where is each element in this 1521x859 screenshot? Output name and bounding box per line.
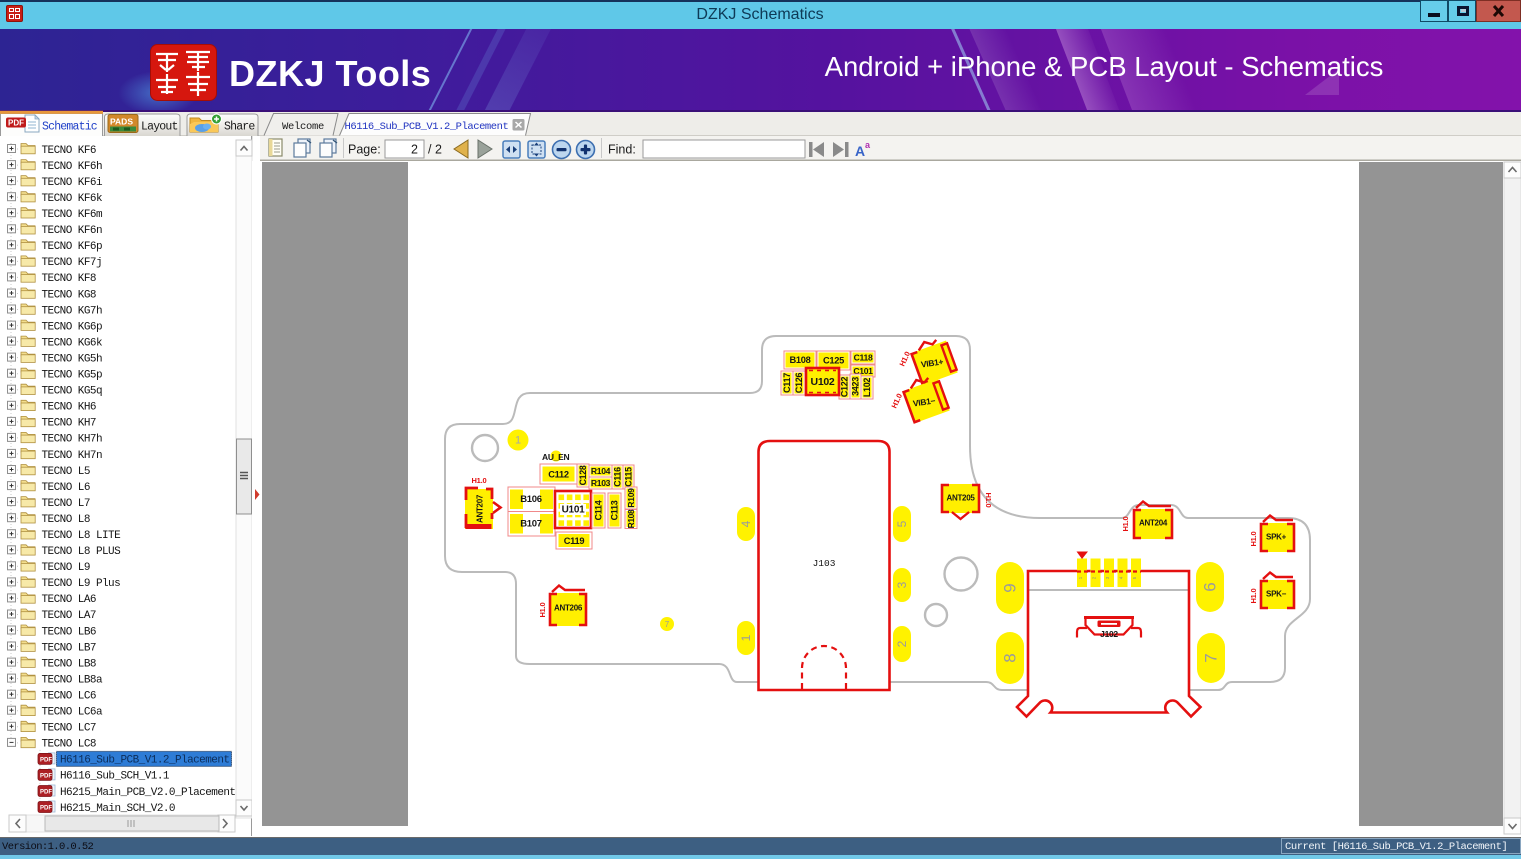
svg-text:H6116_Sub_PCB_V1.2_Placement: H6116_Sub_PCB_V1.2_Placement: [345, 121, 509, 133]
svg-text:H6215_Main_PCB_V2.0_Placement: H6215_Main_PCB_V2.0_Placement: [60, 787, 235, 799]
svg-text:TECNO LC8: TECNO LC8: [42, 739, 96, 751]
svg-text:H1.0: H1.0: [984, 492, 993, 507]
svg-text:2: 2: [411, 143, 418, 157]
svg-text:PADS: PADS: [110, 117, 133, 127]
svg-text:TECNO L5: TECNO L5: [42, 466, 90, 478]
svg-text:B107: B107: [520, 519, 542, 530]
svg-text:TECNO L8: TECNO L8: [42, 514, 90, 526]
svg-text:SPK−: SPK−: [1266, 590, 1287, 599]
svg-text:PDF: PDF: [40, 774, 52, 780]
svg-text:TECNO L9 Plus: TECNO L9 Plus: [42, 578, 121, 590]
svg-text:R108: R108: [626, 509, 636, 528]
svg-text:Schematic: Schematic: [42, 121, 98, 134]
svg-text:C113: C113: [610, 500, 620, 520]
svg-text:ANT205: ANT205: [947, 494, 976, 503]
svg-text:B108: B108: [789, 355, 810, 365]
svg-text:C122: C122: [840, 377, 850, 398]
svg-text:TECNO KF8: TECNO KF8: [42, 273, 96, 285]
svg-text:A: A: [855, 143, 865, 159]
svg-text:7: 7: [665, 620, 670, 629]
svg-text:C125: C125: [823, 356, 844, 366]
svg-text:9: 9: [1001, 583, 1020, 592]
svg-text:C128: C128: [578, 465, 588, 485]
svg-text:TECNO LC6: TECNO LC6: [42, 691, 96, 703]
svg-text:C112: C112: [548, 470, 569, 480]
svg-text:PDF: PDF: [40, 758, 52, 764]
svg-text:R109: R109: [626, 488, 636, 508]
svg-text:3423: 3423: [851, 377, 861, 396]
svg-text:TECNO KG6k: TECNO KG6k: [42, 337, 103, 349]
svg-text:Layout: Layout: [141, 121, 178, 134]
svg-text:2: 2: [895, 640, 909, 647]
svg-text:TECNO LB8: TECNO LB8: [42, 658, 96, 670]
svg-text:H6215_Main_SCH_V2.0: H6215_Main_SCH_V2.0: [60, 803, 175, 815]
svg-text:SPK+: SPK+: [1266, 533, 1287, 542]
svg-text:Welcome: Welcome: [282, 121, 324, 133]
svg-text:5: 5: [895, 520, 909, 527]
svg-text:7: 7: [1202, 653, 1221, 662]
svg-text:Page:: Page:: [348, 143, 381, 157]
svg-text:TECNO KF6m: TECNO KF6m: [42, 209, 103, 221]
svg-text:C114: C114: [594, 500, 604, 520]
svg-text:H1.0: H1.0: [1249, 531, 1258, 546]
svg-text:C115: C115: [624, 467, 634, 487]
svg-text:L102: L102: [862, 378, 872, 398]
svg-text:TECNO KH7n: TECNO KH7n: [42, 450, 103, 462]
svg-text:PDF: PDF: [40, 790, 52, 796]
svg-text:C117: C117: [782, 373, 792, 393]
svg-text:/ 2: / 2: [428, 143, 442, 157]
svg-text:TECNO KG7h: TECNO KG7h: [42, 305, 103, 317]
svg-text:TECNO L8 PLUS: TECNO L8 PLUS: [42, 546, 122, 558]
svg-text:TECNO L8 LITE: TECNO L8 LITE: [42, 530, 122, 542]
svg-text:Find:: Find:: [608, 143, 636, 157]
svg-text:TECNO L7: TECNO L7: [42, 498, 90, 510]
svg-text:TECNO KG5q: TECNO KG5q: [42, 386, 103, 398]
svg-text:Share: Share: [224, 121, 255, 134]
svg-text:TECNO KF6n: TECNO KF6n: [42, 225, 103, 237]
svg-text:C116: C116: [613, 467, 623, 487]
svg-text:TECNO KH7h: TECNO KH7h: [42, 434, 103, 446]
svg-text:TECNO LA7: TECNO LA7: [42, 610, 96, 622]
svg-text:H1.0: H1.0: [1121, 516, 1130, 531]
svg-text:H6116_Sub_SCH_V1.1: H6116_Sub_SCH_V1.1: [60, 771, 170, 783]
svg-text:TECNO KH6: TECNO KH6: [42, 402, 96, 414]
svg-text:TECNO KF6p: TECNO KF6p: [42, 241, 103, 253]
svg-text:TECNO KG6p: TECNO KG6p: [42, 321, 103, 333]
svg-text:U101: U101: [562, 504, 585, 515]
svg-text:4: 4: [739, 520, 753, 527]
svg-text:TECNO KF6h: TECNO KF6h: [42, 161, 103, 173]
svg-text:R103: R103: [591, 478, 611, 488]
svg-text:TECNO L9: TECNO L9: [42, 562, 90, 574]
svg-text:ANT206: ANT206: [554, 604, 583, 613]
svg-text:TECNO LB8a: TECNO LB8a: [42, 674, 103, 686]
svg-text:TECNO KF6i: TECNO KF6i: [42, 177, 103, 189]
svg-text:C126: C126: [794, 373, 804, 394]
svg-text:AU_EN: AU_EN: [542, 452, 569, 462]
svg-text:TECNO LC6a: TECNO LC6a: [42, 707, 103, 719]
svg-text:TECNO LB7: TECNO LB7: [42, 642, 96, 654]
svg-text:6: 6: [1201, 582, 1220, 591]
svg-text:TECNO KG5h: TECNO KG5h: [42, 353, 103, 365]
svg-text:PDF: PDF: [40, 806, 52, 812]
svg-text:J102: J102: [1100, 629, 1118, 639]
svg-text:U102: U102: [811, 376, 835, 388]
svg-text:ANT207: ANT207: [476, 494, 485, 523]
svg-text:TECNO LB6: TECNO LB6: [42, 626, 96, 638]
svg-text:B106: B106: [520, 494, 542, 505]
svg-text:TECNO L6: TECNO L6: [42, 482, 90, 494]
svg-text:TECNO KG8: TECNO KG8: [42, 289, 96, 301]
svg-text:TECNO LA6: TECNO LA6: [42, 594, 96, 606]
svg-text:1: 1: [515, 435, 521, 447]
svg-text:TECNO LC7: TECNO LC7: [42, 723, 96, 735]
svg-text:3: 3: [895, 581, 909, 588]
svg-text:C118: C118: [854, 353, 873, 363]
svg-text:TECNO KF7j: TECNO KF7j: [42, 257, 103, 269]
svg-text:R104: R104: [591, 466, 611, 476]
svg-text:1: 1: [739, 634, 753, 641]
svg-text:TECNO KF6: TECNO KF6: [42, 145, 96, 157]
svg-text:ANT204: ANT204: [1139, 519, 1168, 528]
svg-text:J103: J103: [813, 558, 836, 569]
svg-text:H1.0: H1.0: [471, 476, 486, 485]
svg-text:C119: C119: [564, 536, 585, 546]
svg-text:H6116_Sub_PCB_V1.2_Placement: H6116_Sub_PCB_V1.2_Placement: [60, 755, 229, 767]
svg-text:8: 8: [1001, 653, 1020, 662]
svg-text:H1.0: H1.0: [1249, 588, 1258, 603]
svg-text:H1.0: H1.0: [538, 602, 547, 617]
svg-text:PDF: PDF: [8, 119, 24, 128]
svg-text:TECNO KF6k: TECNO KF6k: [42, 193, 103, 205]
svg-text:TECNO KH7: TECNO KH7: [42, 418, 96, 430]
svg-text:TECNO KG5p: TECNO KG5p: [42, 370, 103, 382]
